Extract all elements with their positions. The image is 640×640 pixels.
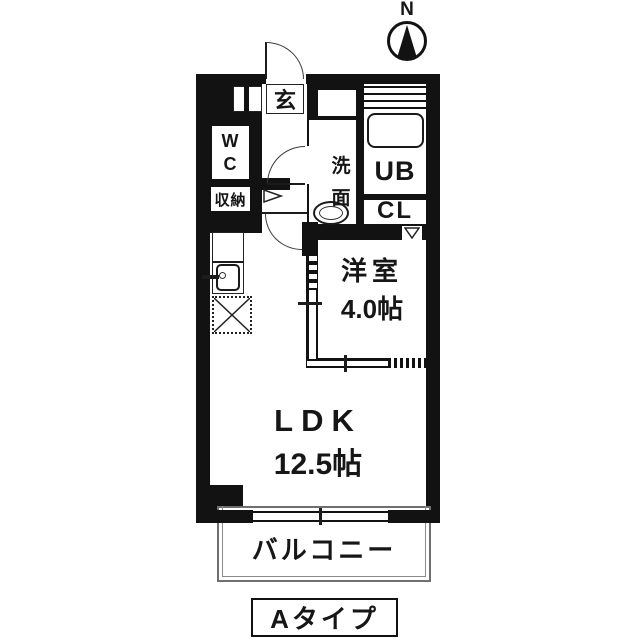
shoe-cabinet-divider xyxy=(244,86,249,112)
bottom-wall-left xyxy=(196,510,253,523)
wall-hatch-section xyxy=(388,358,426,368)
entrance-door-swing-icon xyxy=(266,42,304,79)
wc-label: WC xyxy=(218,129,242,177)
washroom-door-leaf xyxy=(267,183,305,185)
balcony-window-tick-redraw xyxy=(319,508,322,525)
direction-triangle-icon xyxy=(263,189,283,203)
bath-louver-icon xyxy=(364,86,426,112)
closet-label: CL xyxy=(364,197,426,224)
unit-bath-label: UB xyxy=(364,150,426,192)
storage-label: 収納 xyxy=(211,187,250,211)
washroom-door-gap xyxy=(305,146,313,184)
bathtub-icon xyxy=(367,113,424,148)
partition-dashed-section xyxy=(309,252,317,290)
ldk-size: 12.5帖 xyxy=(210,442,426,480)
refrigerator-space-cross-icon xyxy=(214,298,250,332)
corner-wall-stub xyxy=(302,222,318,256)
faucet-icon xyxy=(202,275,219,279)
balcony-label: バルコニー xyxy=(222,530,426,566)
floor-plan: N xyxy=(0,0,640,640)
western-room-label: 洋室 xyxy=(318,252,426,286)
western-room-size: 4.0帖 xyxy=(318,290,426,324)
closet-opening-triangle-icon xyxy=(404,227,420,239)
compass-north-label: N xyxy=(394,0,420,20)
ldk-label: LDK xyxy=(210,402,426,440)
washroom-label: 洗面 xyxy=(330,147,352,219)
western-room-window-tick xyxy=(344,355,347,372)
compass-needle-icon xyxy=(397,25,417,58)
bottom-wall-right xyxy=(388,510,440,523)
kitchen-counter-divider xyxy=(212,261,244,263)
plan-type-label: Aタイプ xyxy=(251,598,398,637)
washing-machine-space xyxy=(318,90,356,116)
entrance-label: 玄 xyxy=(266,84,304,114)
sink-drain-icon xyxy=(219,272,226,279)
western-room-window xyxy=(307,359,388,368)
